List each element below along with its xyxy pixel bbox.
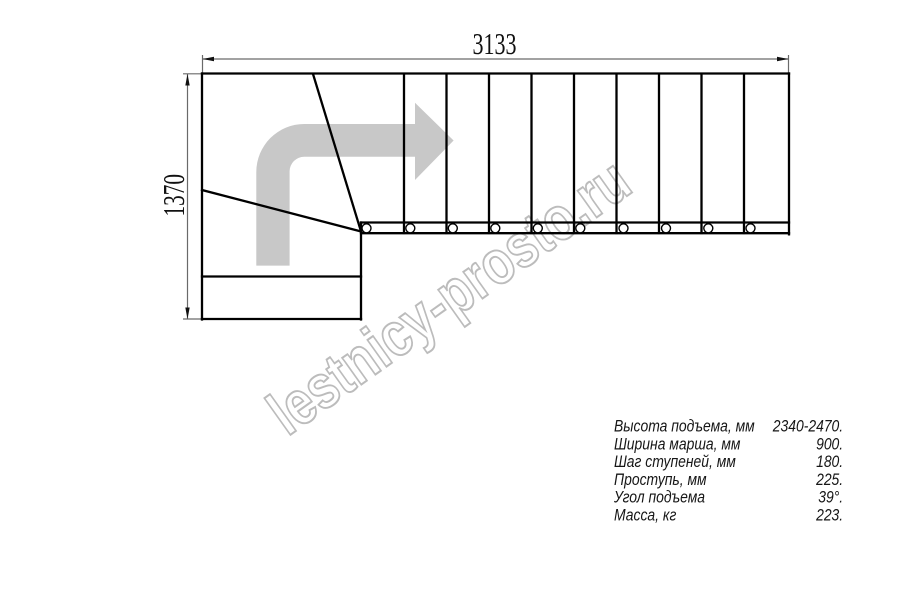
svg-text:Высота подъема, мм: Высота подъема, мм bbox=[614, 418, 755, 436]
svg-text:1370: 1370 bbox=[156, 174, 191, 217]
svg-text:2340-2470.: 2340-2470. bbox=[772, 418, 843, 436]
svg-text:900.: 900. bbox=[816, 435, 843, 453]
svg-text:Масса, кг: Масса, кг bbox=[614, 506, 677, 524]
svg-text:Угол подъема: Угол подъема bbox=[613, 489, 705, 507]
svg-text:39°.: 39°. bbox=[818, 489, 843, 507]
svg-text:225.: 225. bbox=[815, 471, 843, 489]
svg-text:Проступь, мм: Проступь, мм bbox=[614, 471, 707, 489]
svg-text:223.: 223. bbox=[815, 506, 843, 524]
svg-text:180.: 180. bbox=[816, 453, 843, 471]
svg-text:lestnicy-prosto.ru: lestnicy-prosto.ru bbox=[256, 146, 643, 449]
svg-text:3133: 3133 bbox=[473, 26, 517, 61]
svg-text:Шаг ступеней, мм: Шаг ступеней, мм bbox=[614, 453, 736, 471]
svg-text:Ширина марша, мм: Ширина марша, мм bbox=[614, 435, 741, 453]
